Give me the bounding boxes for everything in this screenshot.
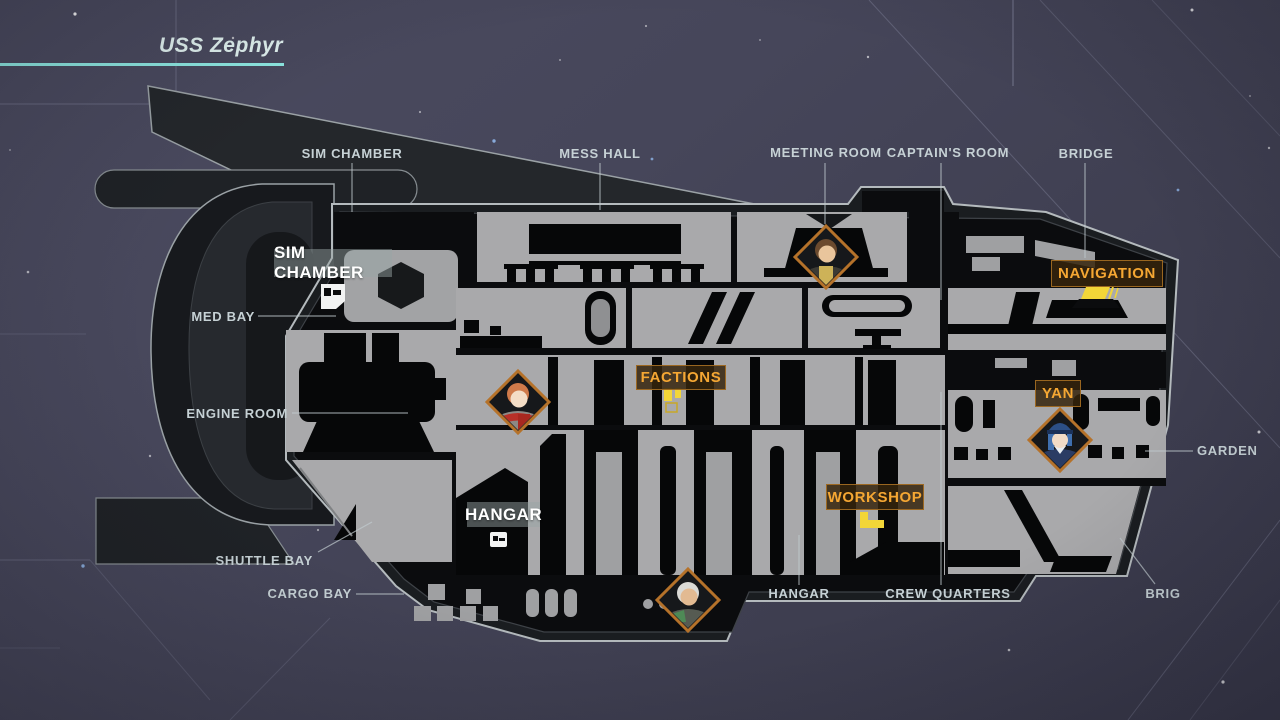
room-crew-quarters [948, 486, 1140, 574]
room-mess-hall [477, 212, 731, 282]
title-underline [0, 63, 284, 66]
ship-map-screen: USS Zephyr SIM CHAMBER MESS HALL MEETING… [0, 0, 1280, 720]
callout-crew-quarters: CREW QUARTERS [868, 586, 1028, 601]
room-captains [909, 212, 959, 282]
callout-brig: BRIG [1083, 586, 1243, 601]
callout-hangar: HANGAR [719, 586, 879, 601]
callout-sim-chamber: SIM CHAMBER [272, 146, 432, 161]
tag-sim-chamber[interactable]: SIM CHAMBER [274, 249, 392, 277]
tag-navigation[interactable]: NAVIGATION [1051, 260, 1163, 287]
callout-shuttle-bay: SHUTTLE BAY [153, 553, 313, 568]
callout-bridge: BRIDGE [1006, 146, 1166, 161]
room-nav-deck [948, 288, 1166, 388]
callout-med-bay: MED BAY [95, 309, 255, 324]
callout-engine-room: ENGINE ROOM [128, 406, 288, 421]
tag-hangar[interactable]: HANGAR [467, 502, 540, 527]
callout-captains-room: CAPTAIN'S ROOM [868, 145, 1028, 160]
room-engine [286, 330, 456, 452]
callout-mess-hall: MESS HALL [520, 146, 680, 161]
room-medbay-row [456, 288, 940, 349]
callout-cargo-bay: CARGO BAY [192, 586, 352, 601]
tag-yan[interactable]: YAN [1035, 380, 1081, 407]
ship-map-art [0, 0, 1280, 720]
tag-factions[interactable]: FACTIONS [636, 365, 726, 390]
tag-workshop[interactable]: WORKSHOP [826, 484, 924, 510]
ship-name: USS Zephyr [0, 34, 283, 58]
callout-garden: GARDEN [1197, 443, 1258, 458]
